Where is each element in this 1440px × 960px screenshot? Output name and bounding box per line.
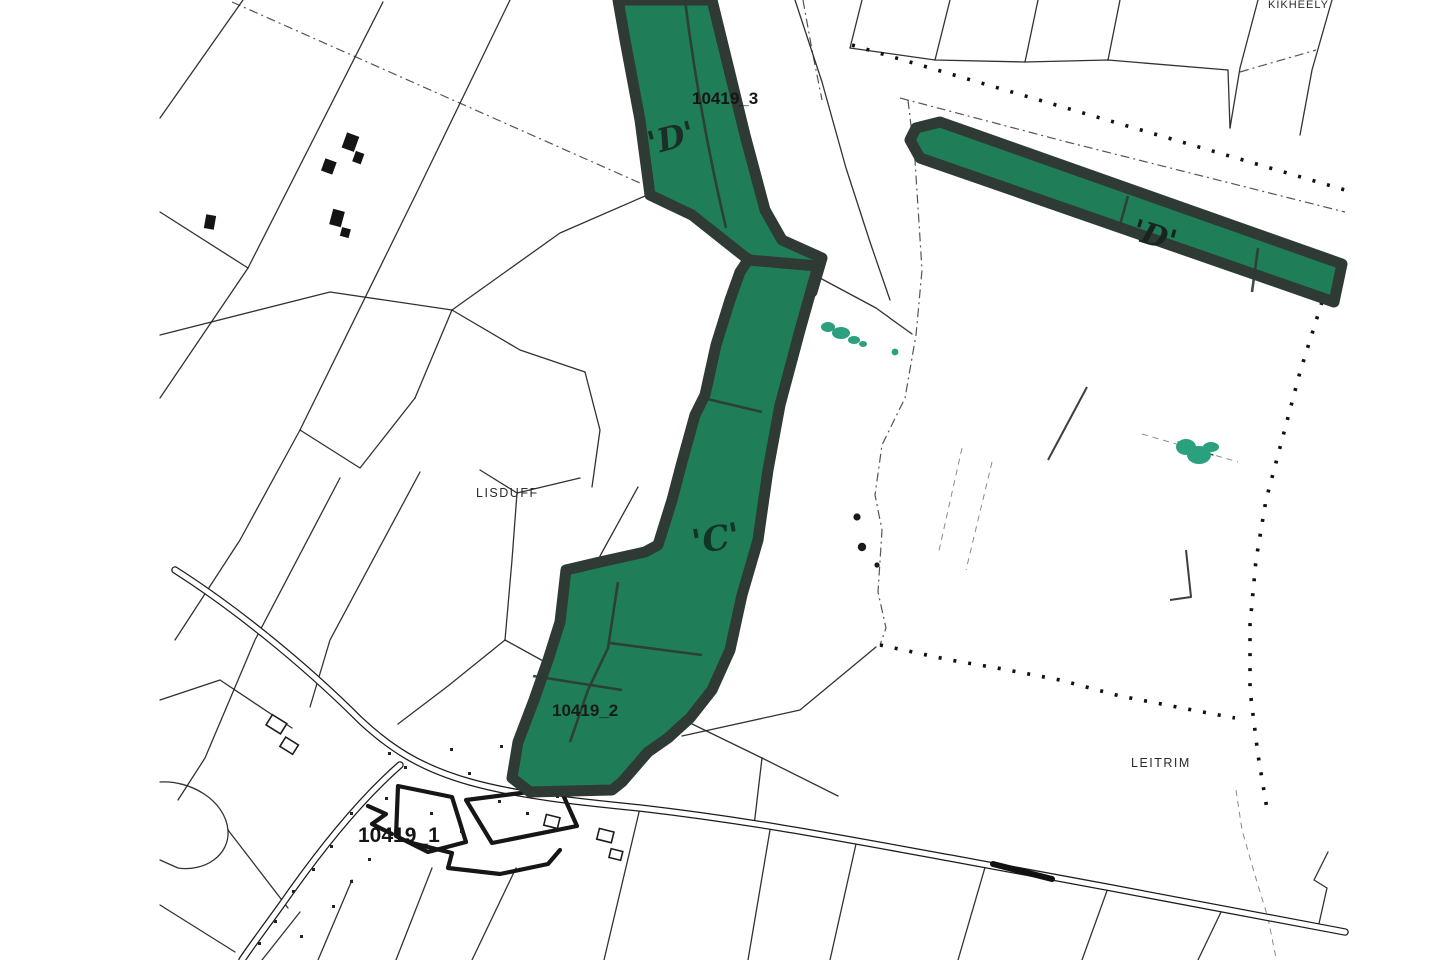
cadastral-map-scan: 10419_3 'D' 'D' 'C' 10419_2 10419_1 LISD… <box>0 0 1440 960</box>
label-townland-lisduff: LISDUFF <box>476 486 539 500</box>
label-townland-leitrim: LEITRIM <box>1131 756 1191 770</box>
label-parcel-10419-3: 10419_3 <box>692 89 758 108</box>
label-letter-c: 'C' <box>689 515 743 563</box>
label-parcel-10419-1: 10419_1 <box>358 824 440 847</box>
label-townland-kiheely: KIKHEELY <box>1268 0 1329 11</box>
label-parcel-10419-2: 10419_2 <box>552 701 618 720</box>
map-canvas: 10419_3 'D' 'D' 'C' 10419_2 10419_1 LISD… <box>0 0 1440 960</box>
